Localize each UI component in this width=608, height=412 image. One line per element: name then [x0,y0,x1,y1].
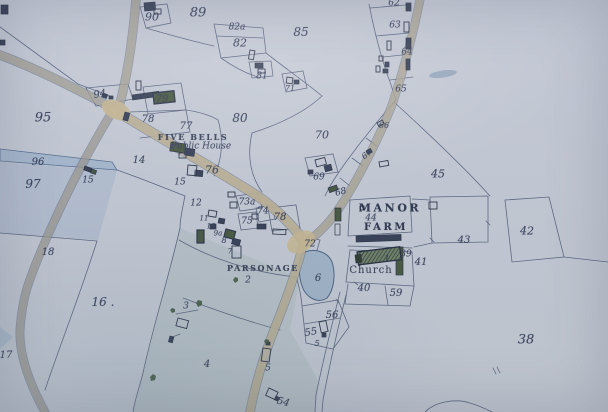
map-label-n85: 85 [293,26,308,38]
map-label-n76: 76 [205,165,219,176]
map-label-n82a: 82a [229,24,246,33]
historic-map-canvas: 908982a828581716263646566677069684594959… [0,0,608,412]
map-label-n96: 96 [32,158,45,168]
map-label-n89: 89 [190,7,207,20]
map-label-n82: 82 [233,38,247,49]
map-label-n11: 11 [200,216,209,223]
map-label-n18: 18 [42,248,55,258]
map-label-n7: 7 [228,249,232,256]
map-label-n4: 4 [204,360,210,370]
map-label-n40: 40 [358,284,371,294]
map-label-n78a: 78 [142,115,155,125]
map-label-n56: 56 [326,311,339,321]
map-label-n39: 39 [400,251,411,260]
map-label-n43: 43 [458,236,471,246]
map-label-n62: 62 [388,0,399,9]
map-label-n63: 63 [389,22,400,31]
map-label-n81: 81 [256,73,267,82]
map-label-n59: 59 [390,289,403,299]
map-label-n45: 45 [431,169,445,180]
map-label-n15: 15 [174,179,185,188]
map-label-n2: 2 [245,277,251,286]
map-label-n90: 90 [145,12,159,23]
map-label-church: Church [349,266,392,276]
map-label-n5b: 5 [314,340,319,348]
map-label-n72: 72 [304,241,315,250]
map-label-n95: 95 [35,112,52,125]
map-label-n5a: 5 [265,365,271,374]
map-label-n12: 12 [190,200,201,209]
label-layer: 908982a828581716263646566677069684594959… [0,0,608,412]
map-label-n66: 66 [379,122,389,130]
map-label-n64: 64 [401,49,412,58]
map-label-pub: FIVE BELLS [158,133,228,141]
map-label-n75: 75 [241,218,252,227]
map-label-parsonage: PARSONAGE [227,264,299,272]
map-label-n94: 94 [93,89,107,101]
map-label-n17: 17 [0,351,12,361]
map-label-n71: 71 [285,85,295,93]
map-label-n70: 70 [315,130,329,141]
map-label-n78b: 78 [274,213,287,223]
map-label-n38: 38 [518,334,535,347]
map-label-n8: 8 [221,237,226,245]
map-label-n69: 69 [313,174,324,183]
map-label-n6: 6 [315,274,321,284]
map-label-n16: 16 . [92,296,115,308]
map-label-n42: 42 [520,226,534,237]
map-label-n74: 74 [257,208,268,217]
map-label-n68: 68 [334,187,347,199]
map-label-n3: 3 [183,303,189,312]
map-label-n14: 14 [133,156,146,166]
map-label-pub2: Public House [171,143,231,152]
map-label-n55: 55 [304,327,318,339]
map-label-n1: 1 [384,256,390,265]
map-label-n97: 97 [25,178,40,190]
map-label-n54: 54 [276,397,291,410]
map-label-n73a: 73a [239,199,256,208]
map-label-n79: 79 [156,95,169,105]
map-label-n41: 41 [415,258,428,268]
map-label-n15w: 15 [82,177,93,186]
map-label-farm: FARM [364,223,408,233]
map-label-manor: MANOR [359,203,422,214]
map-label-n65: 65 [395,86,406,95]
map-label-n77: 77 [180,122,193,132]
map-label-n80: 80 [232,112,247,124]
map-label-n67: 67 [361,149,374,161]
